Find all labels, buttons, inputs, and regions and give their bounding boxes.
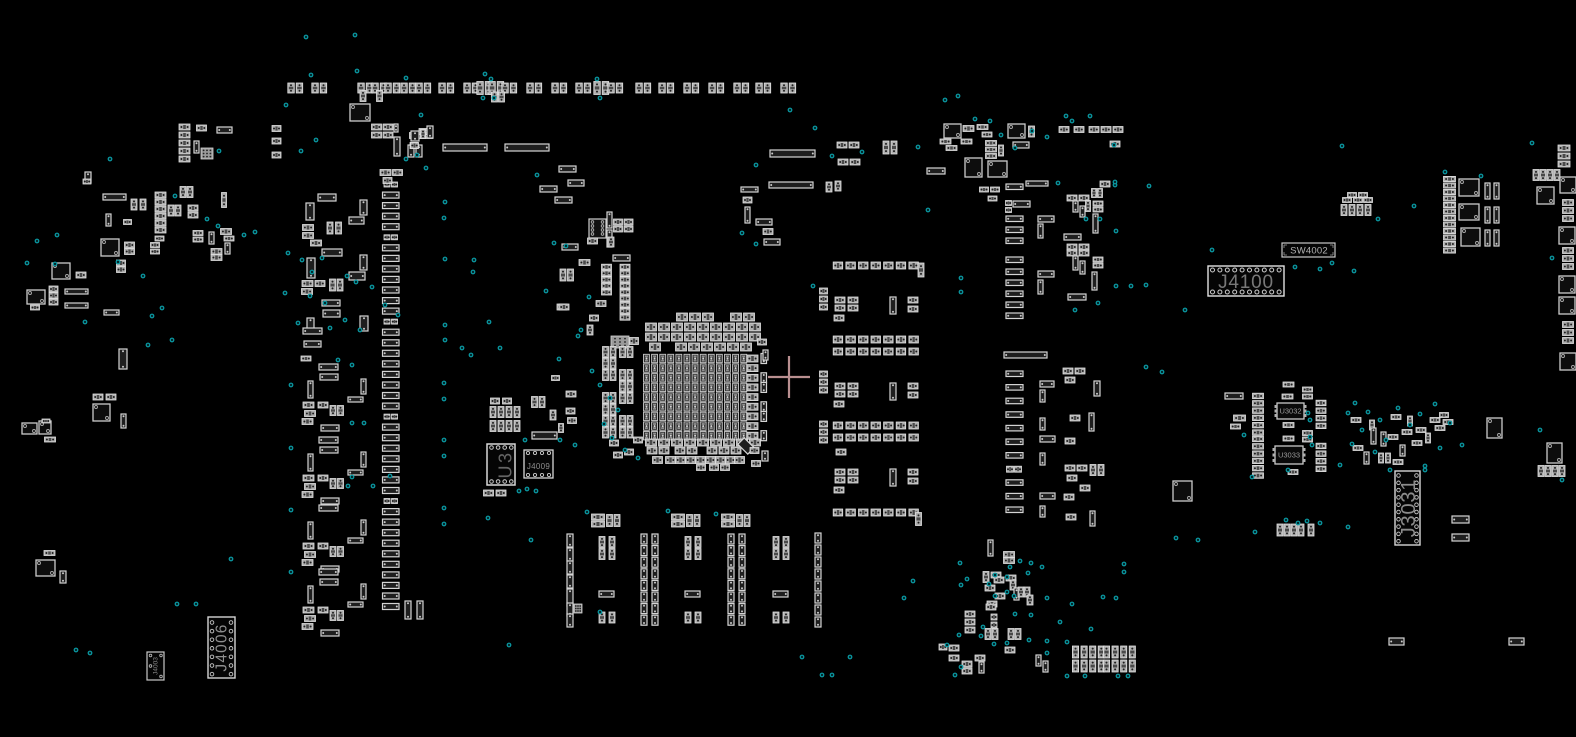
svg-text:U3033: U3033 [1278,451,1300,460]
svg-text:J4006: J4006 [214,623,231,671]
svg-text:J3031: J3031 [1398,479,1420,538]
svg-text:U3032: U3032 [1279,407,1301,416]
svg-text:SW4002: SW4002 [1290,246,1328,257]
svg-text:J4100: J4100 [1218,272,1274,293]
svg-text:J4003: J4003 [153,657,160,675]
svg-text:U3: U3 [495,450,515,478]
svg-text:J4009: J4009 [527,462,551,471]
